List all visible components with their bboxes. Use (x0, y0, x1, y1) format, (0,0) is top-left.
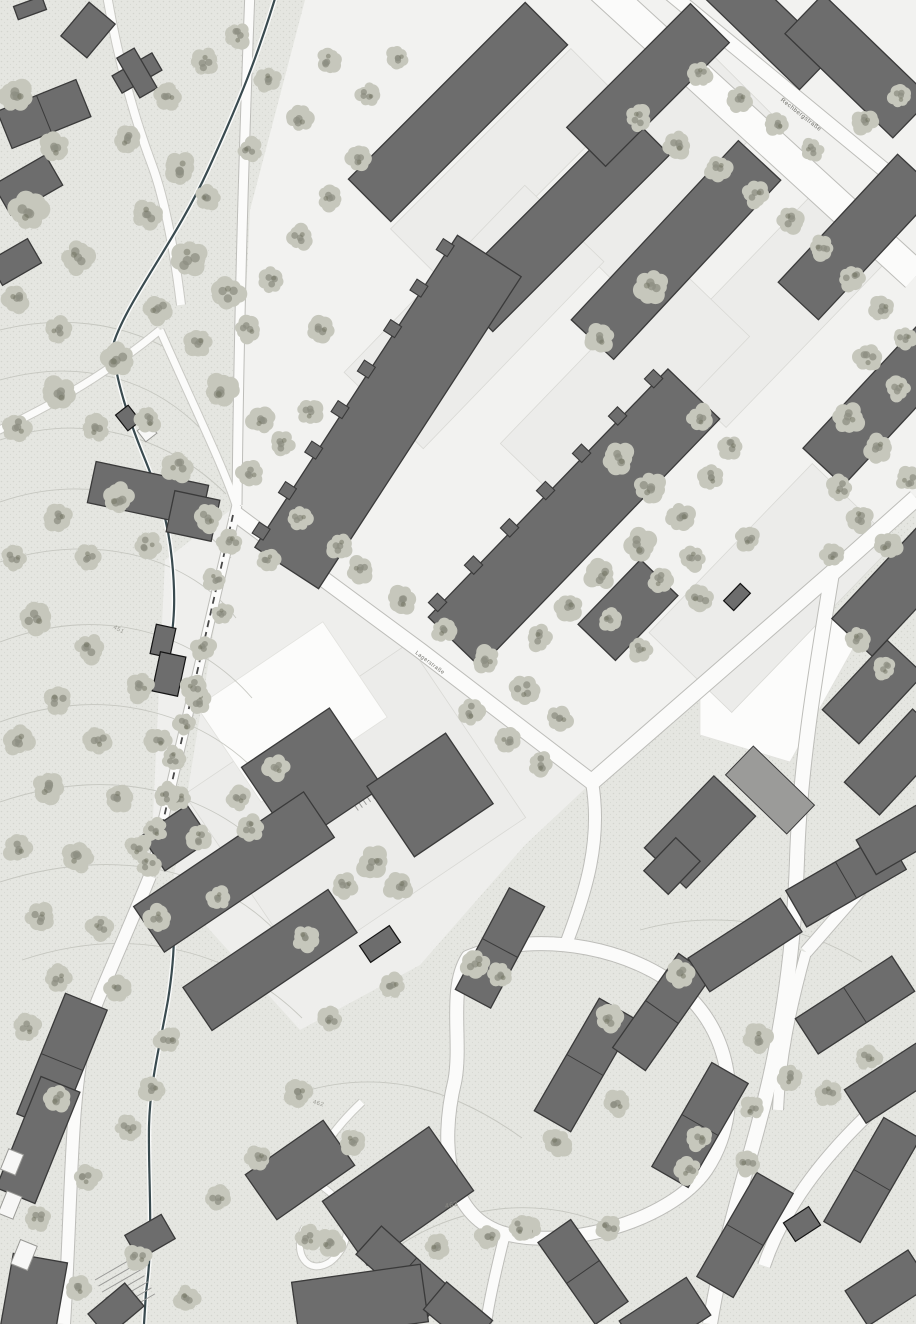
tree (717, 436, 742, 459)
site-plan-svg: 463462451RechbergstraßeLagerstraße (0, 0, 916, 1324)
tree (740, 1097, 763, 1119)
site-plan-map: 463462451RechbergstraßeLagerstraße (0, 0, 916, 1324)
tree (297, 400, 323, 424)
